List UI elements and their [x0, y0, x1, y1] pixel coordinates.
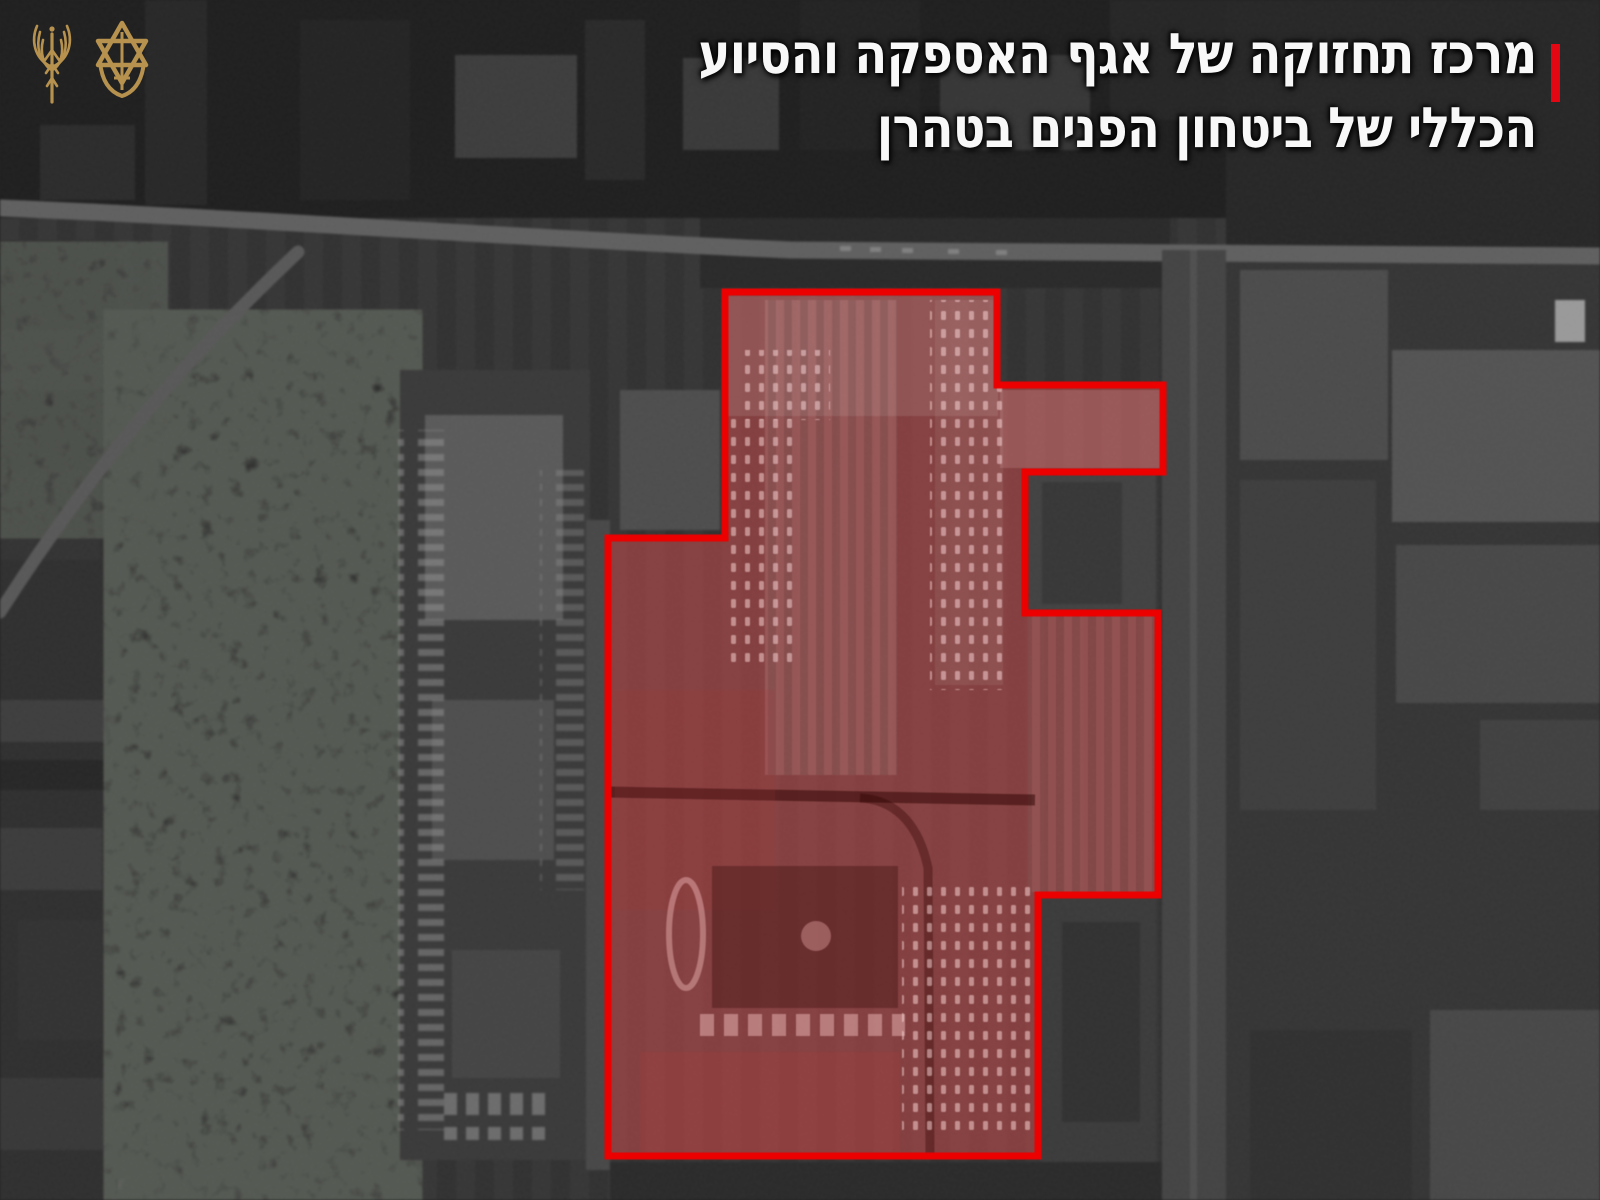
- headline-block: מרכז תחזוקה של אגף האספקה והסיוע הכללי ש…: [698, 18, 1536, 166]
- title-accent-bar: [1551, 44, 1560, 102]
- target-area-annotation: [0, 0, 1600, 1200]
- winged-antenna-emblem-icon: [26, 20, 78, 106]
- logo-cluster: [26, 20, 154, 106]
- headline-line-1: מרכז תחזוקה של אגף האספקה והסיוע: [698, 18, 1536, 92]
- headline-line-2: הכללי של ביטחון הפנים בטהרן: [698, 92, 1536, 166]
- idf-emblem-icon: [90, 20, 154, 102]
- briefing-graphic: מרכז תחזוקה של אגף האספקה והסיוע הכללי ש…: [0, 0, 1600, 1200]
